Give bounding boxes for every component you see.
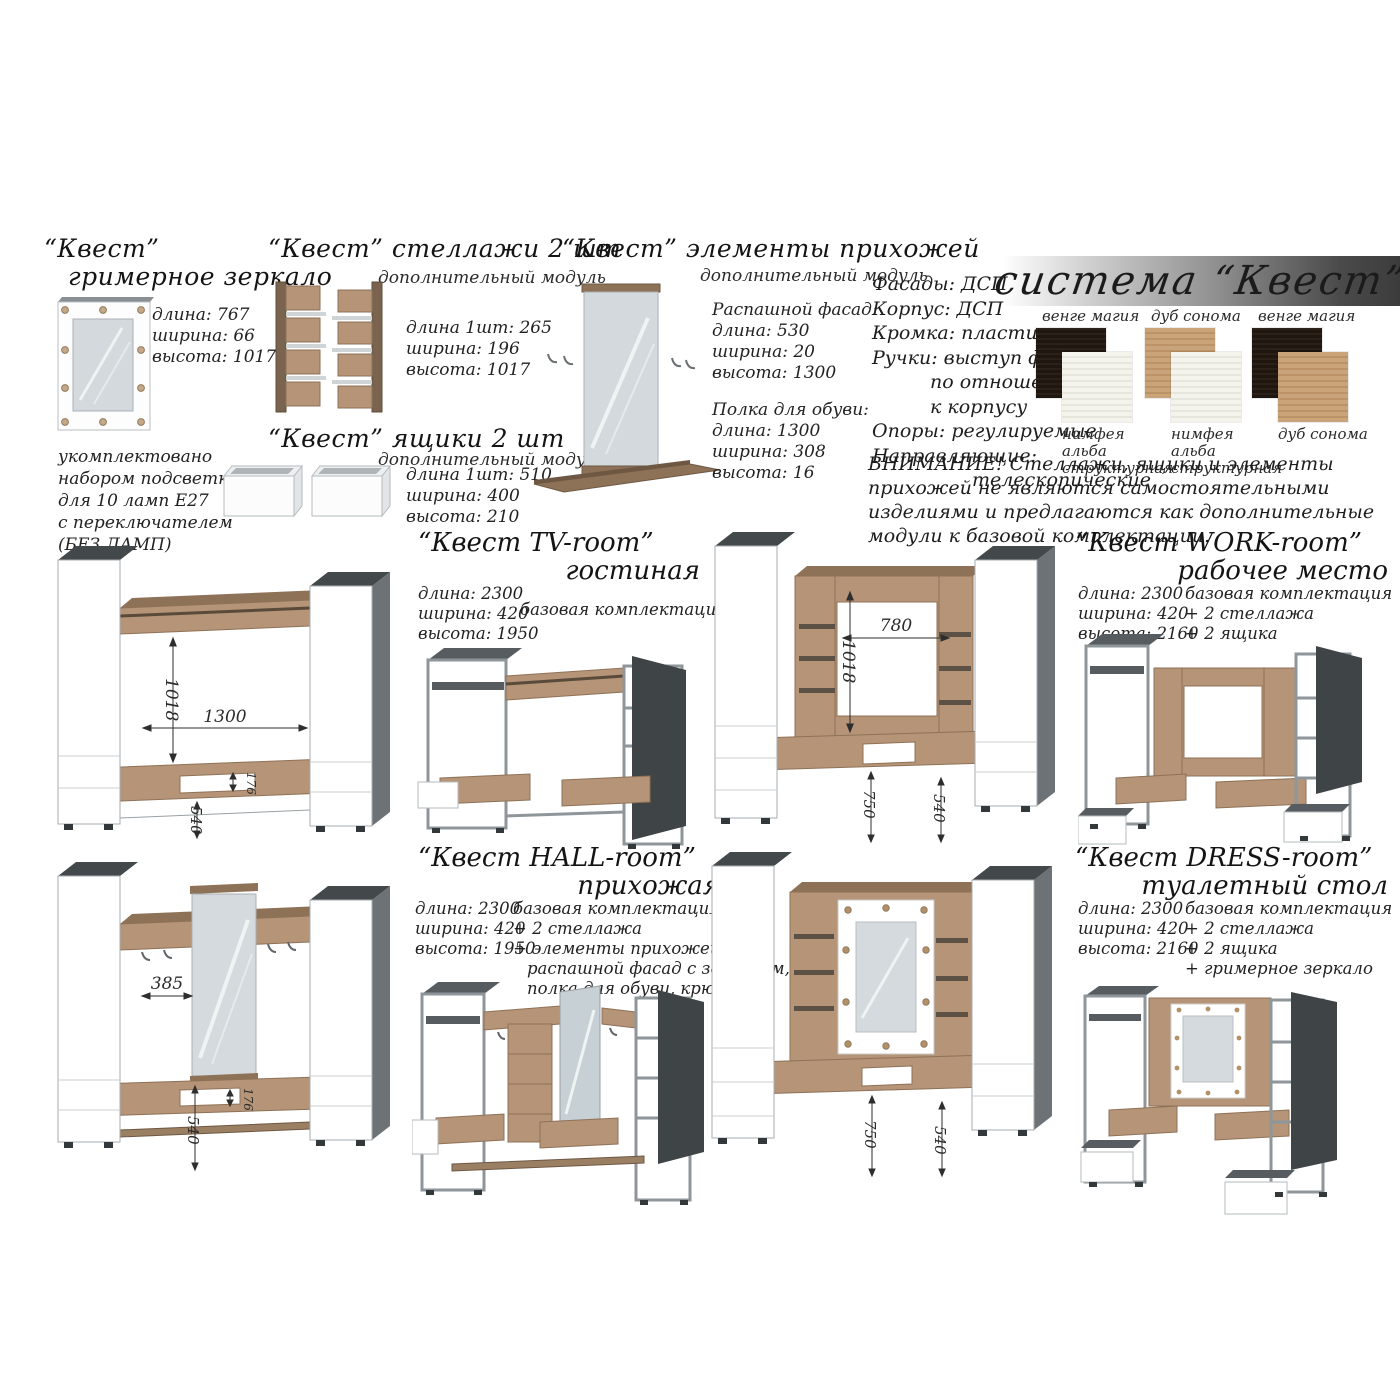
shelves-drawing <box>270 276 388 422</box>
svg-text:540: 540 <box>930 794 948 823</box>
svg-text:176: 176 <box>241 1088 255 1111</box>
dress-room-subtitle: туалетный стол <box>1075 871 1388 901</box>
svg-text:540: 540 <box>187 806 205 835</box>
material-swatch-pair: венге магия дуб сонома <box>1252 308 1370 466</box>
svg-text:540: 540 <box>931 1126 949 1155</box>
drawers-drawing <box>216 458 396 528</box>
swatch-dub-sonoma <box>1278 352 1348 422</box>
drawers-dims: длина 1шт: 510 ширина: 400 высота: 210 <box>406 465 552 528</box>
swatch-nimfea-alba <box>1171 352 1241 422</box>
work-room-subtitle: рабочее место <box>1075 556 1388 586</box>
work-room-title: “Квест WORK-room” <box>1075 528 1362 558</box>
svg-text:385: 385 <box>151 974 183 994</box>
hall-room-subtitle: прихожая <box>418 871 720 901</box>
work-room-render <box>1078 626 1378 856</box>
dress-room-render <box>1075 982 1385 1237</box>
dress-room-title: “Квест DRESS-room” <box>1075 843 1372 873</box>
swatch-label: дуб сонома <box>1151 308 1241 325</box>
tv-room-config: базовая комплектация <box>520 600 727 620</box>
catalog-page: “Квест” гримерное зеркало длина: 767 шир… <box>0 0 1400 1400</box>
svg-text:750: 750 <box>861 1120 879 1149</box>
svg-text:1018: 1018 <box>838 640 858 683</box>
svg-text:750: 750 <box>860 790 878 819</box>
dress-room-technical-drawing: 750 540 <box>700 838 1060 1203</box>
makeup-mirror-drawing <box>50 292 158 440</box>
svg-text:1018: 1018 <box>161 678 181 721</box>
swatch-label: дуб сонома <box>1278 426 1388 443</box>
shoe-shelf-drawing <box>532 458 724 494</box>
swatch-label: венге магия <box>1042 308 1139 325</box>
material-swatch-pair: дуб сонома нимфея альба структурная <box>1145 308 1263 466</box>
hall-room-technical-drawing: 385 176 540 <box>40 838 400 1188</box>
hallway-shoe-dims: Полка для обуви: длина: 1300 ширина: 308… <box>712 400 869 484</box>
hall-room-render <box>412 968 712 1233</box>
drawers-module-title: “Квест” ящики 2 шт <box>268 424 565 453</box>
mirror-module-title: “Квест” <box>44 234 159 263</box>
tv-room-title: “Квест TV-room” <box>418 528 654 558</box>
tv-room-subtitle: гостиная <box>418 556 700 586</box>
mirror-dims: длина: 767 ширина: 66 высота: 1017 <box>152 305 276 368</box>
hall-room-title: “Квест HALL-room” <box>418 843 696 873</box>
hallway-mirror-drawing <box>540 278 700 484</box>
dress-room-config: базовая комплектация + 2 стеллажа + 2 ящ… <box>1185 899 1392 979</box>
tv-room-render <box>412 630 704 855</box>
dress-room-dims: длина: 2300ширина: 420высота: 2160 <box>1078 899 1199 959</box>
swatch-label: венге магия <box>1258 308 1355 325</box>
svg-text:176: 176 <box>244 772 258 795</box>
tv-room-technical-drawing: 1018 1300 176 540 <box>40 530 400 845</box>
hallway-module-title: “Квест” элементы прихожей <box>562 234 980 263</box>
svg-text:780: 780 <box>880 616 913 636</box>
work-room-technical-drawing: 780 1018 750 540 <box>703 520 1058 850</box>
svg-text:1300: 1300 <box>203 707 246 727</box>
svg-text:540: 540 <box>184 1116 202 1145</box>
material-swatch-pair: венге магия нимфея альба структурная <box>1036 308 1154 466</box>
dimension-lines <box>143 638 307 838</box>
hallway-facade-dims: Распашной фасад: длина: 530 ширина: 20 в… <box>712 300 878 384</box>
swatch-nimfea-alba <box>1062 352 1132 422</box>
shelves-dims: длина 1шт: 265 ширина: 196 высота: 1017 <box>406 318 552 381</box>
